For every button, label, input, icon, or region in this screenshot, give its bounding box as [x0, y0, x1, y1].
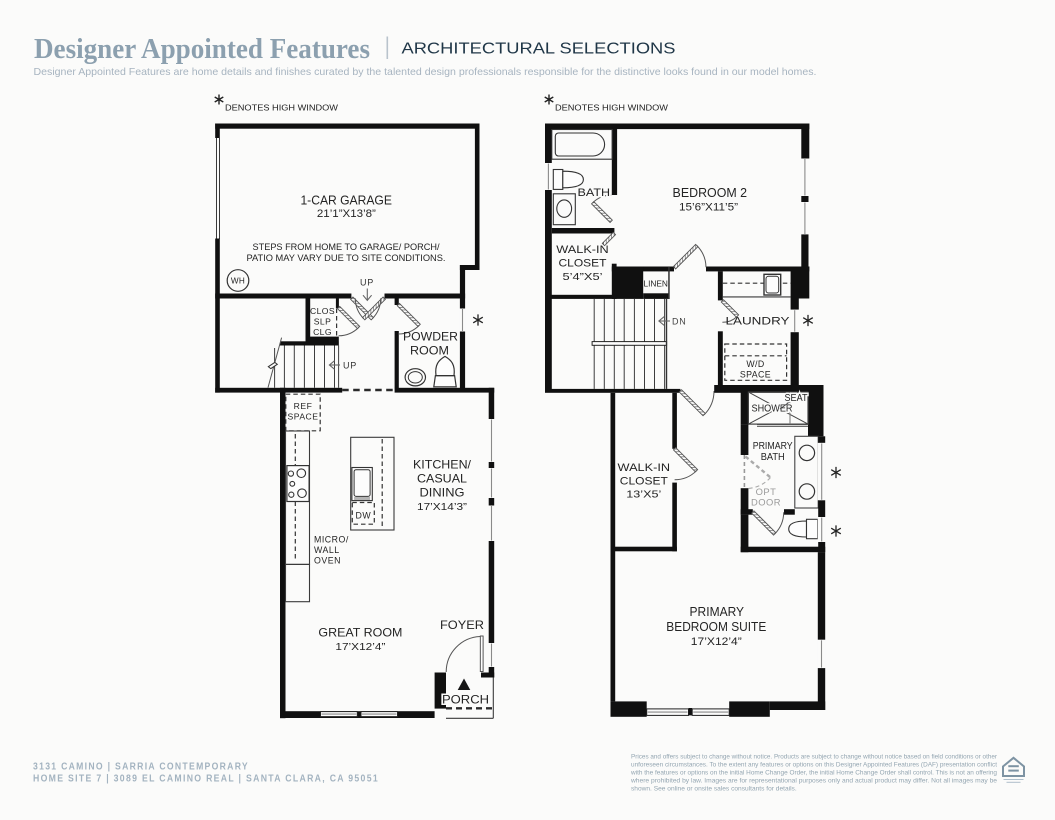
svg-text:21’1”X13’8”: 21’1”X13’8” [317, 208, 376, 220]
svg-text:3131 CAMINO | SARRIA CONTEMPOR: 3131 CAMINO | SARRIA CONTEMPORARY [33, 761, 249, 772]
svg-text:BEDROOM 2: BEDROOM 2 [673, 185, 748, 200]
svg-text:FOYER: FOYER [440, 619, 484, 632]
svg-text:BATH: BATH [761, 452, 785, 463]
svg-text:Prices and offers subject to c: Prices and offers subject to change with… [631, 753, 998, 760]
svg-text:MICRO/: MICRO/ [314, 535, 349, 545]
svg-text:LAUNDRY: LAUNDRY [726, 316, 790, 328]
svg-text:WALK-IN: WALK-IN [556, 244, 609, 256]
svg-text:CASUAL: CASUAL [417, 473, 468, 486]
svg-text:PATIO MAY VARY DUE TO SITE CON: PATIO MAY VARY DUE TO SITE CONDITIONS. [247, 253, 446, 263]
svg-text:1-CAR GARAGE: 1-CAR GARAGE [300, 193, 392, 208]
svg-text:WALL: WALL [314, 545, 340, 555]
svg-text:HOME SITE 7 | 3089 EL CAMINO R: HOME SITE 7 | 3089 EL CAMINO REAL | SANT… [33, 774, 379, 785]
svg-text:SHOWER: SHOWER [752, 404, 793, 415]
svg-text:with the features or options o: with the features or options on the init… [630, 769, 997, 776]
svg-text:UP: UP [360, 278, 374, 288]
svg-text:ARCHITECTURAL SELECTIONS: ARCHITECTURAL SELECTIONS [402, 41, 676, 58]
svg-text:Designer Appointed Features: Designer Appointed Features [34, 34, 370, 65]
svg-text:DOOR: DOOR [751, 497, 781, 508]
svg-text:UP: UP [343, 360, 357, 370]
svg-text:OVEN: OVEN [314, 556, 341, 566]
svg-text:17’X14’3”: 17’X14’3” [417, 502, 468, 513]
svg-text:POWDER: POWDER [403, 331, 458, 344]
svg-text:DENOTES HIGH WINDOW: DENOTES HIGH WINDOW [225, 103, 339, 113]
svg-text:DW: DW [355, 511, 371, 521]
svg-text:5’4”X5’: 5’4”X5’ [563, 272, 603, 283]
svg-text:Designer Appointed Features ar: Designer Appointed Features are home det… [34, 67, 817, 78]
svg-text:unforeseen circumstances. To t: unforeseen circumstances. To the extent … [631, 761, 997, 768]
svg-text:SPACE: SPACE [740, 370, 771, 380]
svg-text:SPACE: SPACE [288, 412, 319, 422]
svg-text:CLOSET: CLOSET [620, 476, 669, 488]
svg-text:BATH: BATH [578, 187, 611, 199]
svg-text:13’X5’: 13’X5’ [626, 490, 661, 501]
svg-text:STEPS FROM HOME TO GARAGE/ POR: STEPS FROM HOME TO GARAGE/ PORCH/ [253, 242, 440, 252]
svg-text:DINING: DINING [420, 487, 465, 500]
svg-text:DENOTES HIGH WINDOW: DENOTES HIGH WINDOW [555, 103, 669, 113]
svg-text:LINEN: LINEN [643, 279, 668, 289]
svg-text:SLP: SLP [314, 317, 331, 327]
svg-text:KITCHEN/: KITCHEN/ [413, 459, 472, 472]
svg-text:SEAT: SEAT [785, 393, 808, 404]
svg-text:ROOM: ROOM [410, 345, 449, 358]
svg-text:where prohibited by law. Image: where prohibited by law. Images are for … [630, 777, 997, 784]
svg-text:WALK-IN: WALK-IN [618, 462, 671, 474]
svg-text:REF: REF [294, 401, 313, 411]
svg-text:CLG: CLG [313, 327, 332, 337]
svg-text:BEDROOM SUITE: BEDROOM SUITE [666, 619, 766, 634]
svg-text:OPT: OPT [756, 486, 777, 497]
svg-text:CLOS: CLOS [310, 306, 335, 316]
svg-text:W/D: W/D [746, 359, 764, 369]
svg-text:PRIMARY: PRIMARY [690, 604, 745, 619]
svg-text:CLOSET: CLOSET [559, 258, 608, 270]
svg-text:GREAT ROOM: GREAT ROOM [318, 627, 402, 640]
svg-text:WH: WH [231, 277, 245, 286]
svg-text:DN: DN [672, 316, 687, 326]
svg-text:17’X12’4”: 17’X12’4” [691, 636, 742, 648]
svg-text:shown. See online or onsite sa: shown. See online or onsite sales consul… [631, 785, 797, 792]
svg-text:15’6”X11’5”: 15’6”X11’5” [679, 202, 738, 214]
svg-text:17’X12’4”: 17’X12’4” [335, 642, 386, 653]
svg-text:PORCH: PORCH [442, 694, 489, 707]
svg-text:PRIMARY: PRIMARY [753, 441, 793, 452]
